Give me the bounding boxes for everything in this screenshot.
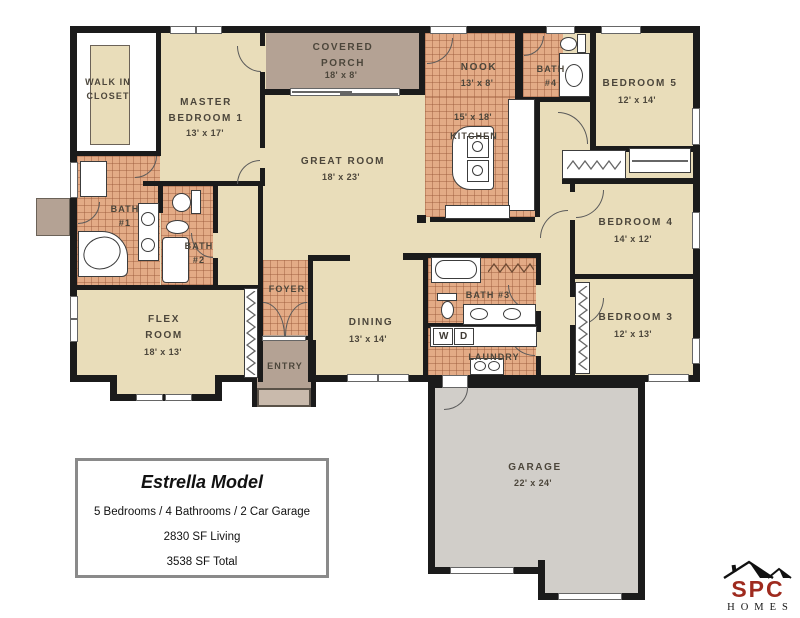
master-bedroom-dims: 13' x 17' xyxy=(186,128,224,138)
bath4-window xyxy=(546,26,575,34)
flex-bay-window-2 xyxy=(165,394,192,401)
logo-spc-text: SPC xyxy=(714,578,800,601)
model-total-sf: 3538 SF Total xyxy=(78,556,326,568)
walkin-closet-label: WALK IN CLOSET xyxy=(85,76,131,104)
bath2-label: BATH #2 xyxy=(185,240,214,268)
covered-porch-dims: 18' x 8' xyxy=(325,70,358,80)
nook-window xyxy=(430,26,467,34)
laundry-garage-door-opening xyxy=(442,375,468,388)
bedroom3-bottom-window xyxy=(648,374,689,382)
bedroom5-side-window xyxy=(692,108,700,145)
garage-ext-door-opening xyxy=(558,593,622,600)
bath4-toilet-tank xyxy=(577,34,586,53)
bedroom3-dims: 12' x 13' xyxy=(614,329,652,339)
master-bedroom-label: MASTER BEDROOM 1 xyxy=(169,95,244,126)
bedroom3-side-window xyxy=(692,338,700,364)
bath2-sink xyxy=(166,220,189,234)
bedroom4-window xyxy=(692,212,700,249)
bath1-sink-1 xyxy=(141,212,155,226)
garage-label: GARAGE xyxy=(508,460,562,476)
flex-room-dims: 18' x 13' xyxy=(144,347,182,357)
model-info-box: Estrella Model 5 Bedrooms / 4 Bathrooms … xyxy=(75,458,329,578)
foyer-label: FOYER xyxy=(269,283,306,297)
bedroom5-label: BEDROOM 5 xyxy=(603,76,678,92)
bedroom5-top-window xyxy=(601,26,641,34)
bath3-label: BATH #3 xyxy=(466,289,511,303)
flex-room-label: FLEX ROOM xyxy=(145,312,183,343)
bedroom4-dims: 14' x 12' xyxy=(614,234,652,244)
washer-label: W xyxy=(439,331,448,342)
bath4-label: BATH #4 xyxy=(537,63,566,91)
bath3-toilet xyxy=(441,301,454,319)
front-door-opening xyxy=(262,336,306,341)
model-title: Estrella Model xyxy=(78,472,326,493)
model-specs: 5 Bedrooms / 4 Bathrooms / 2 Car Garage xyxy=(78,506,326,518)
nook-dims: 13' x 8' xyxy=(461,78,494,88)
garage-dims: 22' x 24' xyxy=(514,478,552,488)
bedroom4-label: BEDROOM 4 xyxy=(599,215,674,231)
shower xyxy=(80,161,107,197)
bath3-toilet-tank xyxy=(437,293,457,301)
laundry-label: LAUNDRY xyxy=(468,351,519,365)
floor-plan-page: WALK IN CLOSET MASTER BEDROOM 1 13' x 17… xyxy=(0,0,800,618)
bath1-label: BATH #1 xyxy=(111,203,140,231)
bedroom3-label: BEDROOM 3 xyxy=(599,310,674,326)
dining-dims: 13' x 14' xyxy=(349,334,387,344)
shower-window xyxy=(70,162,78,198)
garage-door-opening xyxy=(450,567,514,574)
kitchen-dims: 15' x 18' xyxy=(454,112,492,122)
dining-label: DINING xyxy=(349,315,394,331)
great-room-label: GREAT ROOM xyxy=(301,154,385,170)
entry-steps xyxy=(257,388,311,407)
entry-label: ENTRY xyxy=(267,360,303,374)
dryer-label: D xyxy=(460,331,467,342)
bath3-sink-2 xyxy=(503,308,521,320)
kitchen-counter xyxy=(508,99,535,211)
model-living-sf: 2830 SF Living xyxy=(78,531,326,543)
linen-closet-marks xyxy=(488,262,534,274)
nook-label: NOOK xyxy=(461,60,497,76)
bedroom5-dims: 12' x 14' xyxy=(618,95,656,105)
builder-logo: SPC HOMES xyxy=(714,558,800,613)
covered-porch-label: COVERED PORCH xyxy=(313,40,374,71)
bath4-sink xyxy=(565,64,583,87)
kitchen-label: KITCHEN xyxy=(450,130,498,144)
bath2-toilet-tank xyxy=(191,190,201,214)
bath3-sink-1 xyxy=(470,308,488,320)
tub-bay xyxy=(36,198,70,236)
bath4-toilet xyxy=(560,37,577,51)
logo-homes-text: HOMES xyxy=(714,602,800,613)
kitchen-counter-bottom xyxy=(445,205,510,219)
great-room-dims: 18' x 23' xyxy=(322,172,360,182)
bath2-toilet xyxy=(172,193,191,212)
bath1-sink-2 xyxy=(141,238,155,252)
flex-bay-window-1 xyxy=(136,394,163,401)
